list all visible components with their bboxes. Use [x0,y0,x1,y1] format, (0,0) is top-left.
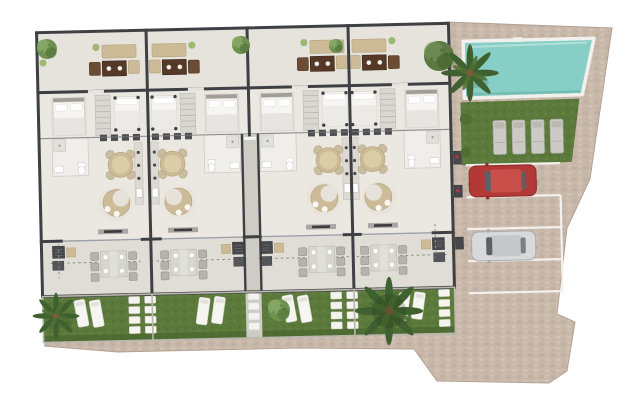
silver-car [471,228,536,264]
car-roof [489,235,521,257]
rear-window [521,237,526,253]
windshield [485,171,491,191]
garden-shrub [268,299,290,321]
corner-tree-shade [424,41,454,71]
sunbed-4 [550,119,564,153]
car-roof [488,169,523,193]
palm-shade [372,294,406,328]
red-car [469,162,537,200]
terrace-tree-1 [37,39,57,59]
pool-palm [441,44,499,102]
garden-palm-left [33,293,80,340]
door-gap [392,83,408,87]
ac-indicator [455,155,458,158]
terrace-tree-3 [329,39,343,53]
pool-ladder [513,37,522,42]
site-plan-canvas [0,0,630,401]
ac-indicator [456,189,459,192]
door-gap [188,88,204,92]
windshield [486,237,492,255]
garden-divider-1 [152,294,153,340]
sunbed-2 [512,120,526,154]
walkway-door [244,137,256,140]
site-plan-stage [0,0,630,401]
rear-window [521,171,526,189]
door-gap [88,90,104,94]
roof-terrace-floor [37,23,450,92]
sunbed-3 [531,119,545,153]
terrace-tree-2 [232,36,250,54]
garden-divider-2 [354,290,355,336]
sunbed-1 [493,120,507,154]
door-gap [292,85,308,89]
utility-box [455,237,463,249]
terrace-fern [40,60,47,67]
